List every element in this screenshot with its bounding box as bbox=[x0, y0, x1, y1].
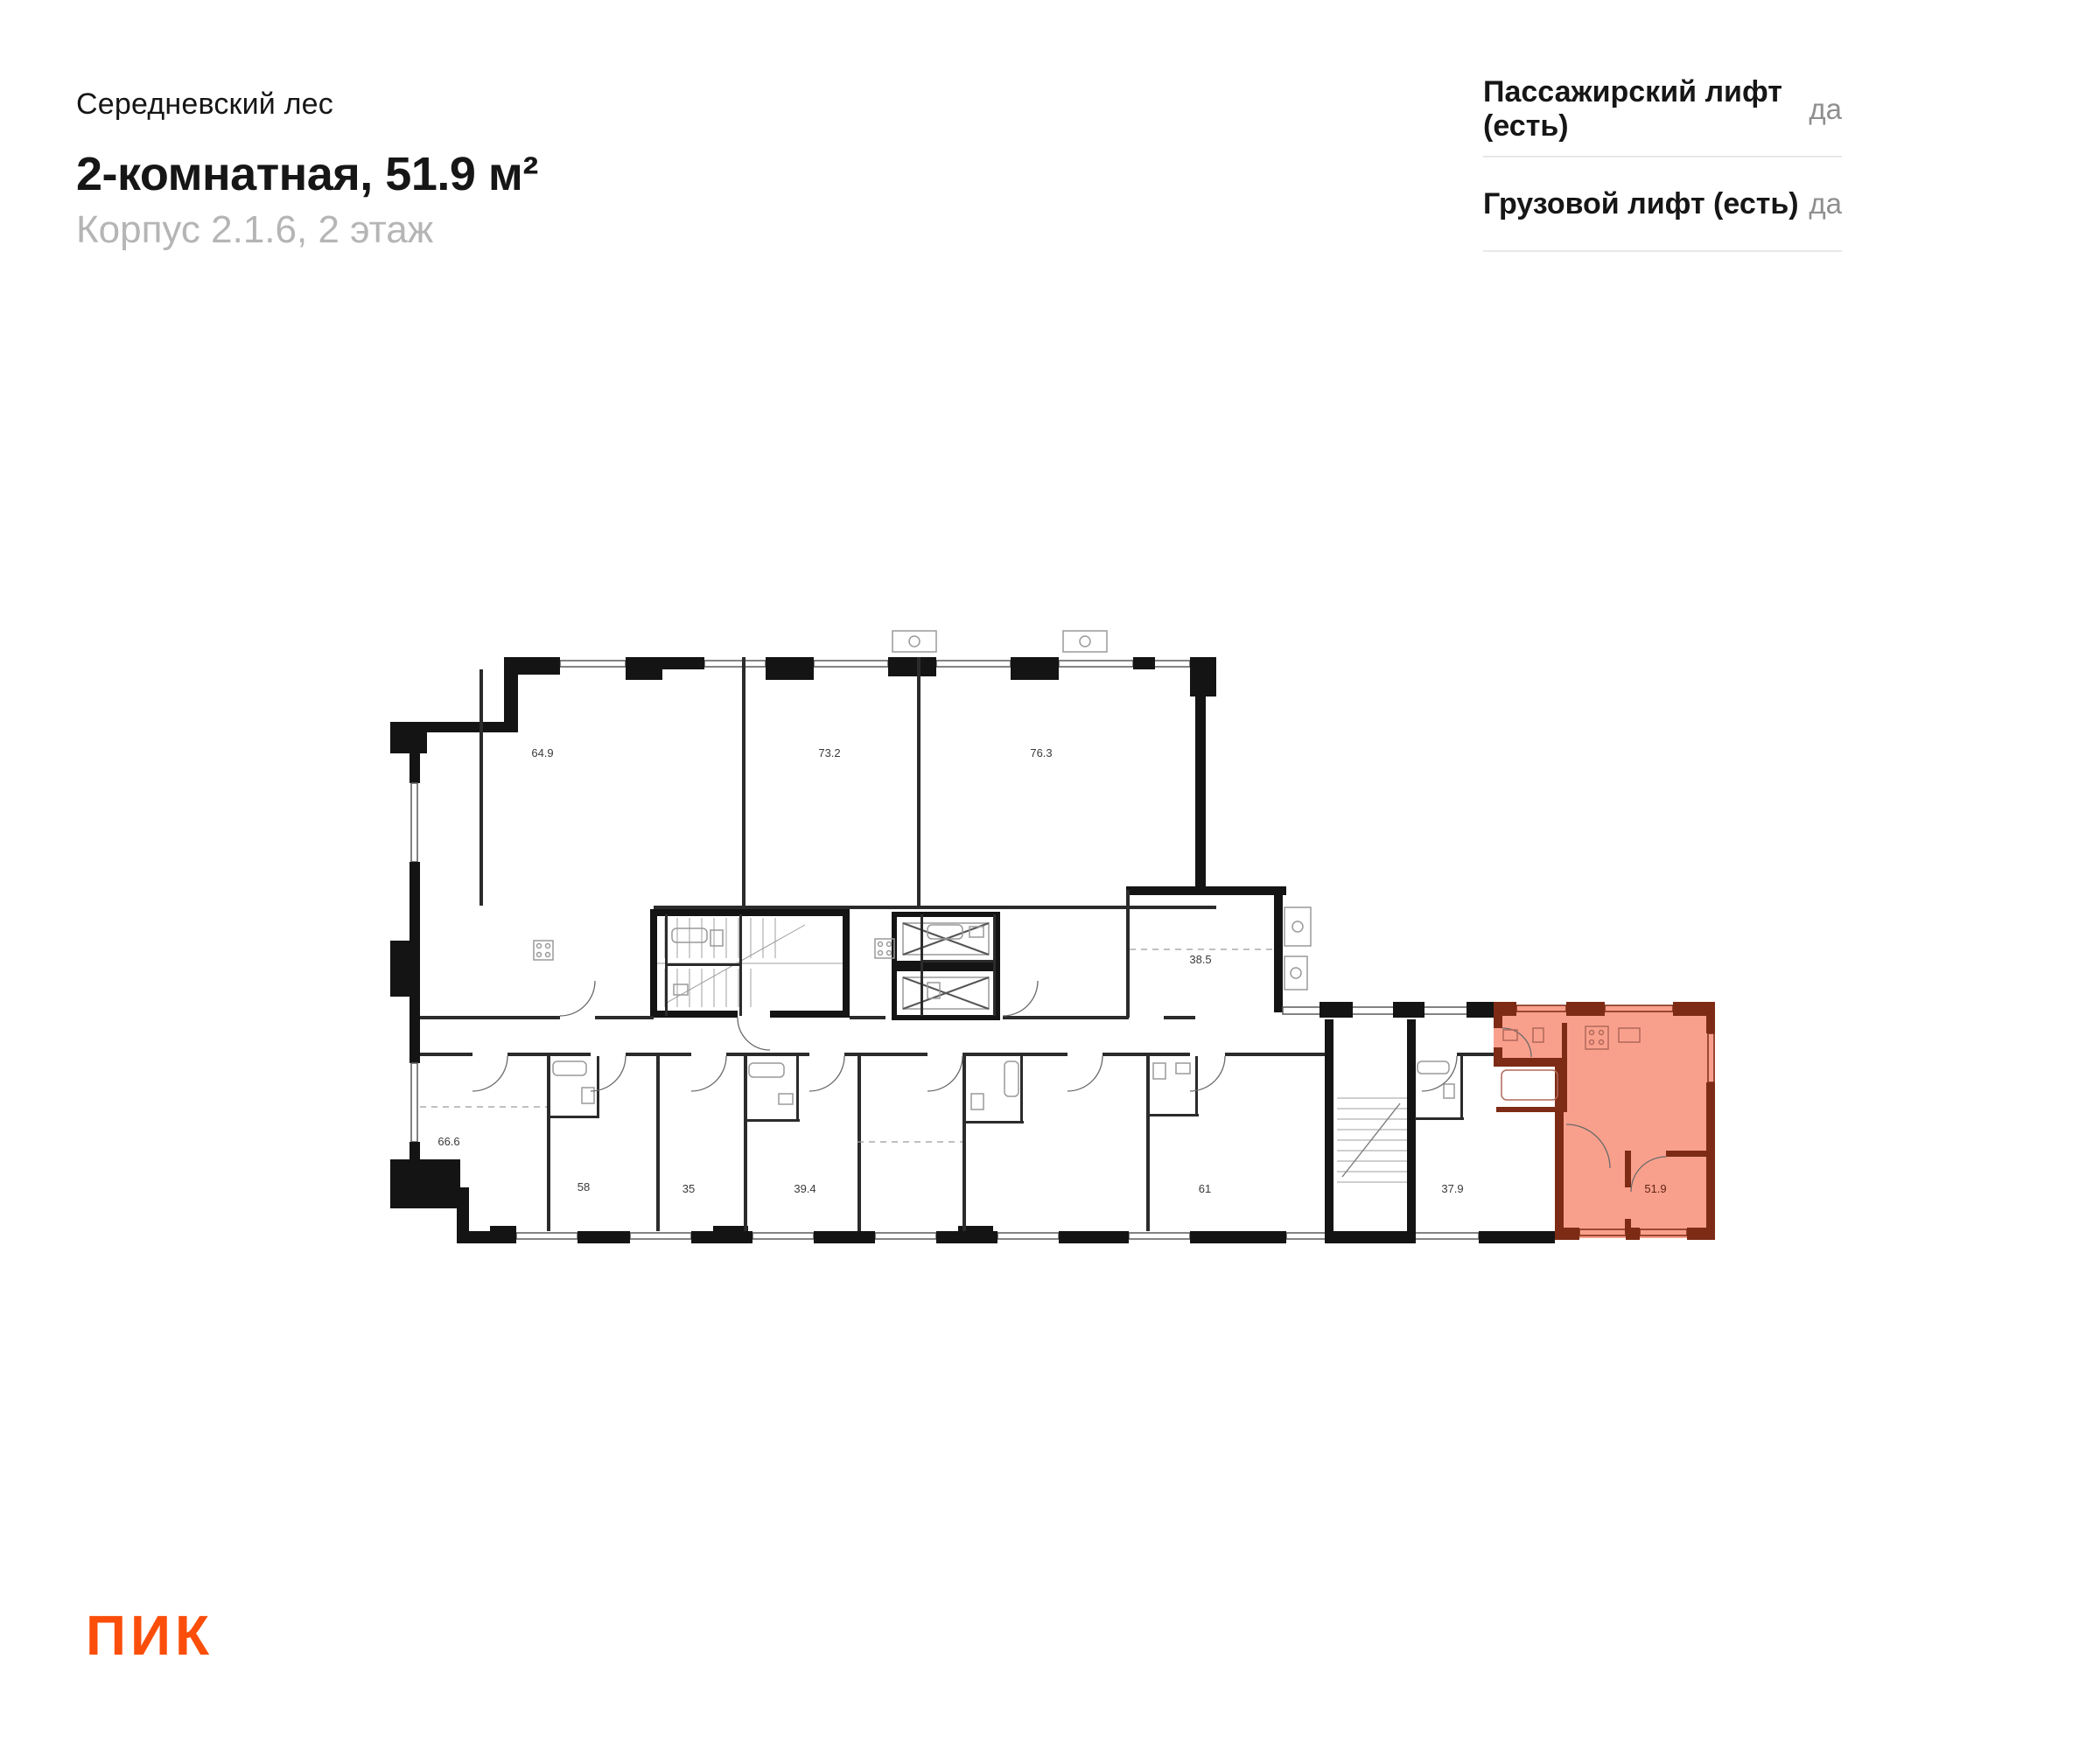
left-exterior-wall bbox=[390, 657, 518, 1243]
page-title: 2-комнатная, 51.9 м² bbox=[76, 147, 538, 201]
unit-area-label: 38.5 bbox=[1189, 953, 1211, 966]
building-subtitle: Корпус 2.1.6, 2 этаж bbox=[76, 208, 433, 252]
cargo-lift-label: Грузовой лифт (есть) bbox=[1483, 187, 1799, 221]
floor-plan-container: 64.9 73.2 76.3 38.5 66.6 58 35 39.4 61 3… bbox=[385, 626, 1724, 1264]
page: { "header": { "project": "Середневский л… bbox=[0, 0, 2100, 1750]
unit-area-label: 64.9 bbox=[531, 746, 553, 759]
unit-area-label: 37.9 bbox=[1441, 1182, 1463, 1195]
unit-area-label: 35 bbox=[682, 1182, 695, 1195]
elevator-shafts bbox=[894, 914, 997, 1018]
project-name: Середневский лес bbox=[76, 87, 864, 122]
core-band-north-wall bbox=[654, 906, 1216, 909]
passenger-lift-value: да bbox=[1809, 93, 1842, 126]
highlighted-unit[interactable] bbox=[1494, 1005, 1715, 1238]
info-row-passenger-lift: Пассажирский лифт (есть) да bbox=[1483, 63, 1842, 157]
bottom-exterior-wall bbox=[460, 1226, 1555, 1243]
unit-area-label: 76.3 bbox=[1030, 746, 1052, 759]
info-row-cargo-lift: Грузовой лифт (есть) да bbox=[1483, 157, 1842, 252]
elevator-info-panel: Пассажирский лифт (есть) да Грузовой лиф… bbox=[1483, 63, 1842, 252]
listing-header: Середневский лес bbox=[76, 87, 864, 122]
top-row-dividers bbox=[479, 657, 920, 907]
passenger-lift-label: Пассажирский лифт (есть) bbox=[1483, 75, 1809, 143]
pik-logo: ПИК bbox=[86, 1603, 213, 1668]
unit-area-label: 66.6 bbox=[437, 1135, 459, 1148]
unit-area-label: 58 bbox=[577, 1180, 590, 1193]
stair-core-2 bbox=[1325, 1019, 1416, 1243]
floor-plan: 64.9 73.2 76.3 38.5 66.6 58 35 39.4 61 3… bbox=[385, 626, 1724, 1264]
unit-area-labels: 64.9 73.2 76.3 38.5 66.6 58 35 39.4 61 3… bbox=[437, 746, 1666, 1195]
highlighted-unit-area-label: 51.9 bbox=[1644, 1182, 1666, 1195]
corridor-walls bbox=[420, 1016, 1496, 1056]
unit-area-label: 61 bbox=[1199, 1182, 1211, 1195]
right-step-walls bbox=[1126, 691, 1286, 1018]
unit-area-label: 73.2 bbox=[818, 746, 840, 759]
corridor-parapet bbox=[1283, 1002, 1494, 1018]
bottom-row-dividers bbox=[547, 1056, 1150, 1231]
cargo-lift-value: да bbox=[1809, 187, 1842, 220]
unit-area-label: 39.4 bbox=[794, 1182, 815, 1195]
top-exterior-wall bbox=[507, 657, 1216, 696]
